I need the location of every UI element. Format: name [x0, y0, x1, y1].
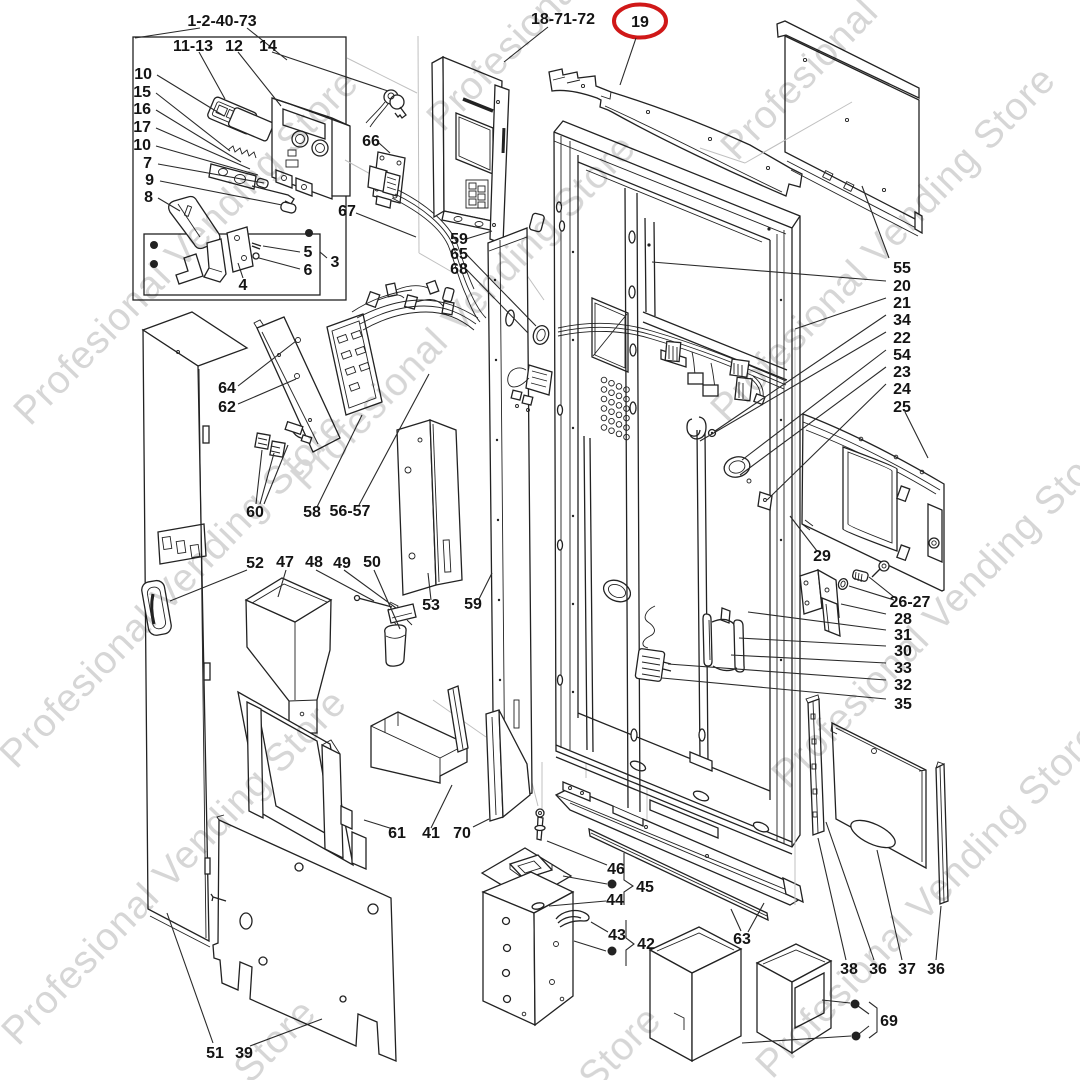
svg-text:70: 70 [453, 825, 471, 842]
svg-text:29: 29 [813, 548, 831, 565]
svg-text:21: 21 [893, 295, 911, 312]
svg-text:49: 49 [333, 555, 351, 572]
svg-text:25: 25 [893, 399, 911, 416]
svg-text:64: 64 [218, 380, 236, 397]
svg-text:52: 52 [246, 555, 264, 572]
svg-text:11-13: 11-13 [173, 38, 213, 55]
svg-text:36: 36 [927, 961, 945, 978]
svg-text:23: 23 [893, 364, 911, 381]
svg-text:56-57: 56-57 [330, 503, 371, 520]
svg-text:17: 17 [133, 119, 151, 136]
svg-text:5: 5 [304, 244, 313, 261]
svg-text:69: 69 [880, 1013, 898, 1030]
svg-text:66: 66 [362, 133, 380, 150]
svg-text:50: 50 [363, 554, 381, 571]
svg-text:37: 37 [898, 961, 916, 978]
svg-text:55: 55 [893, 260, 911, 277]
svg-text:59: 59 [464, 596, 482, 613]
svg-text:4: 4 [239, 277, 248, 294]
svg-text:62: 62 [218, 399, 236, 416]
svg-text:63: 63 [733, 931, 751, 948]
svg-text:35: 35 [894, 696, 912, 713]
svg-text:15: 15 [133, 84, 151, 101]
svg-text:42: 42 [637, 936, 655, 953]
svg-text:20: 20 [893, 278, 911, 295]
svg-text:7: 7 [143, 155, 152, 172]
svg-text:8: 8 [144, 189, 153, 206]
svg-text:16: 16 [133, 101, 151, 118]
svg-text:51: 51 [206, 1045, 224, 1062]
svg-text:41: 41 [422, 825, 440, 842]
svg-text:14: 14 [259, 38, 277, 55]
svg-text:1-2-40-73: 1-2-40-73 [187, 13, 256, 30]
svg-text:3: 3 [331, 254, 340, 271]
svg-text:43: 43 [608, 927, 626, 944]
svg-text:19: 19 [631, 14, 649, 31]
svg-text:53: 53 [422, 597, 440, 614]
svg-text:22: 22 [893, 330, 911, 347]
svg-text:61: 61 [388, 825, 406, 842]
svg-text:48: 48 [305, 554, 323, 571]
svg-text:24: 24 [893, 381, 911, 398]
svg-text:68: 68 [450, 261, 468, 278]
svg-text:6: 6 [304, 262, 313, 279]
svg-text:47: 47 [276, 554, 294, 571]
svg-text:34: 34 [893, 312, 911, 329]
svg-text:9: 9 [145, 172, 154, 189]
svg-text:44: 44 [606, 892, 624, 909]
svg-text:10: 10 [133, 137, 151, 154]
svg-text:58: 58 [303, 504, 321, 521]
svg-text:67: 67 [338, 203, 356, 220]
svg-text:46: 46 [607, 861, 625, 878]
svg-text:45: 45 [636, 879, 654, 896]
svg-text:10: 10 [134, 66, 152, 83]
svg-text:54: 54 [893, 347, 911, 364]
svg-text:12: 12 [225, 38, 243, 55]
